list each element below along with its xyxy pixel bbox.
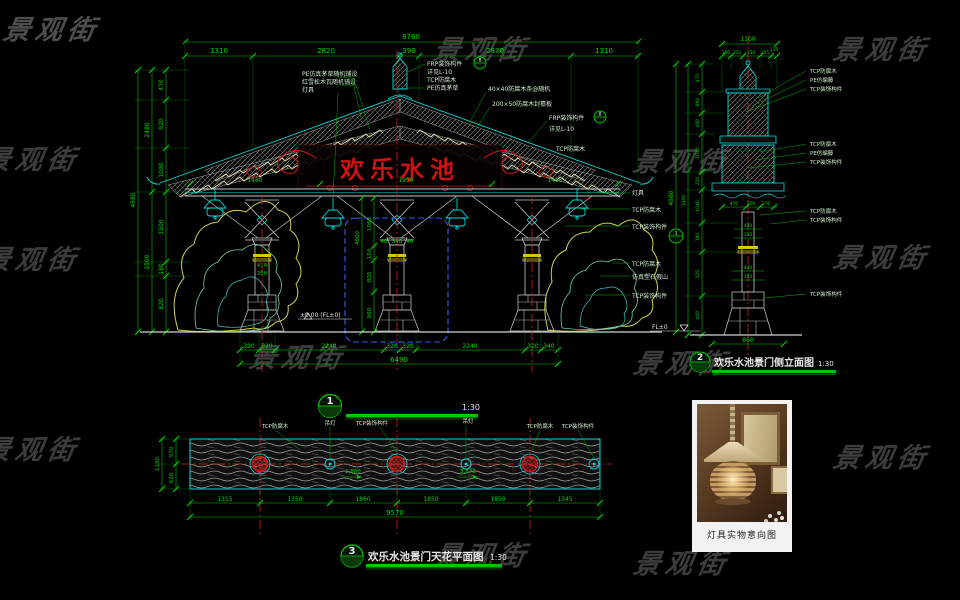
dim-text: 570 [169,446,175,457]
bub​ble-number: 8 [599,112,602,118]
photo-card: 灯具实物意向图 [692,400,792,552]
cad-drawing: 8760 1310 2820 390 2930 1310 470 920 109… [0,0,960,600]
bubble-number: 8 [479,58,482,64]
dim-text: 800 [367,271,373,282]
callout-label: 吊灯 [462,417,474,425]
callout-label: TCP装饰构件 [809,216,843,224]
dim-text: 1090 [158,162,165,177]
detail-bubble: 8 [474,57,486,69]
title-number: 1 [327,396,334,407]
dim-text: 235 [733,50,742,56]
callout-label: TCP装饰构件 [561,422,595,430]
view-title: 欢乐水池景门天花平面图 [367,550,484,563]
dim-text: 4980 [668,190,675,205]
front-left-dims: 470 920 1090 1500 180 820 2480 2500 4980 [130,67,190,335]
level-mark: ±0.00 (FL±0) [298,312,352,319]
dim-text: 2240 [462,343,477,350]
title-number: 2 [697,353,703,363]
bubble-number: 1 [675,231,678,237]
view-title: 欢乐水池景门侧立面图 [713,356,814,369]
callout-label: TCP装饰构件 [809,85,843,93]
callout-label: FRP装饰构件 [427,60,462,68]
dim-text: 430 [744,223,753,229]
dim-text: 110 [770,47,779,53]
callout-label: TCP防腐木 [809,140,837,148]
title-number: 3 [349,546,356,557]
lamp-icon [322,198,344,229]
callout-label: TCP防腐木 [555,145,585,153]
callout-label: 吊灯 [324,419,336,427]
front-bottom-dims: 390 320 2240 320 320 2240 320 340 6490 [237,332,561,367]
photo-small-frame [771,466,787,494]
dim-text: 2930 [486,47,504,55]
dim-text: 1065 [367,217,373,231]
callout-label: TCP装饰构件 [809,290,843,298]
front-right-dim: 4980 [668,61,679,335]
dim-text: 470 [730,201,739,207]
dim-text: 470 [158,79,165,91]
dim-text: 450 [695,119,701,128]
callout-label: PE仿真茅草 [427,84,458,92]
callout-label: TCP防腐木 [631,260,661,268]
callout-label: PE仿编藤 [810,149,834,157]
callout-label: TCP防腐木 [809,67,837,75]
callout-label: 详见L-10 [549,125,574,133]
dim-text: 220 [695,177,701,186]
dim-text: 860 [367,307,373,318]
photo-lamp-body [710,461,756,501]
dim-text: 1315 [217,496,232,503]
dim-text: 1310 [595,47,613,55]
side-elevation: 1100 180 235 350 225 110 470 860 450 104… [650,35,843,375]
plan-note: 3,870 [460,469,476,475]
dim-text: 1190 [155,457,161,471]
dim-text: 40 [381,239,388,245]
callout-label: 40×40防腐木条@随机 [488,85,550,93]
dim-text: 2480 [144,122,151,137]
dim-text: 320 [527,343,539,350]
dim-text: 1040 [695,200,701,212]
dim-text: 440 [744,265,753,271]
callout-label: PE仿编藤 [810,76,834,84]
dim-text: 350 [747,201,756,207]
dim-text: 9570 [386,509,404,517]
scale-label: 1:30 [462,403,480,412]
dim-text: 180 [158,263,165,275]
dim-text: 5180 [681,194,687,206]
callout-label: FRP装饰构件 [549,114,584,122]
dim-text: 320 [386,343,398,350]
plan-title: 3 欢乐水池景门天花平面图 1:30 [341,545,507,570]
dim-text: 180 [695,233,701,242]
dim-text: 1350 [287,496,302,503]
dim-text: 470 [695,74,701,83]
dim-text: 2500 [144,254,151,269]
dim-text: 520 [695,270,701,279]
photo-lamp-rope [730,404,735,446]
dim-text: 2820 [317,47,335,55]
dim-text: 860 [695,98,701,107]
dim-text: 1500 [158,219,165,234]
photo-lamp-glow [715,466,751,496]
detail-bubble: 1 [669,229,683,243]
dim-text: 1480 [247,177,262,184]
callout-label: TCP防腐木 [426,76,456,84]
dim-text: 4980 [130,192,137,207]
lamp-photo [697,404,787,522]
callout-label: TCP装饰构件 [809,158,843,166]
dim-text: 320 [402,343,414,350]
dim-text: 40 [407,239,414,245]
column-symbol [520,454,540,474]
dim-text: 6490 [390,356,408,364]
plan-bottom-dims: 1315 1350 1860 1850 1850 1345 9570 [187,489,603,520]
side-title: 2 欢乐水池景门侧立面图 1:30 [690,352,836,375]
callout-label: 灯具 [632,189,644,197]
front-title: 1 欢乐水池景门正立面图 1:30 [319,395,509,420]
callout-label: 灯具 [302,86,314,94]
dim-text: 1310 [210,47,228,55]
front-elevation: 8760 1310 2820 390 2930 1310 470 920 109… [130,33,683,420]
dim-text: 820 [158,298,165,310]
level-text: FL±0 [652,324,668,331]
callout-label: TCP装饰构件 [355,419,389,427]
left-rockery [174,201,301,331]
center-chain-dims: 4800 1065 150 800 860 [355,195,377,335]
dim-text: 4800 [355,231,361,245]
dim-text: 620 [169,472,175,483]
ceiling-plan: TCP防腐木 吊灯 TCP装饰构件 吊灯 TCP防腐木 TCP装饰构件 1,80… [155,417,612,570]
dim-text: 150 [367,248,373,259]
callout-label: TCP装饰构件 [631,292,667,300]
callout-label: 200×50防腐木封檐板 [492,100,552,108]
scale-label: 1:30 [490,553,507,562]
dim-text: 1850 [490,496,505,503]
dim-text: 1345 [557,496,572,503]
dim-text: 350 [744,274,753,280]
callout-label: TCP装饰构件 [631,223,667,231]
photo-caption: 灯具实物意向图 [692,528,792,541]
plan-note: 1,800 [345,469,361,475]
photo-flowers [780,516,784,520]
dim-text: 370 [762,201,771,207]
dim-text: 1040 [695,147,701,159]
dim-text: 225 [761,50,770,56]
callout-label: TCP防腐木 [526,422,554,430]
dim-text: 340 [543,343,555,350]
detail-bubble: 8 [594,111,606,123]
scale-label: 1:30 [818,360,834,368]
callout-label: 详见L-10 [427,68,452,76]
dim-text: 8760 [402,33,420,41]
cad-canvas: 景观街 景观街 景观街 景观街 景观街 景观街 景观街 景观街 景观街 景观街 … [0,0,960,600]
callout-label: TCP防腐木 [809,207,837,215]
dim-text: 400 [695,311,701,320]
callout-label: TCP防腐木 [261,422,289,430]
callout-label: 仿真塑石假山 [632,273,668,281]
column-symbol [250,454,270,474]
dim-text: 390 [402,47,415,55]
photo-lamp-rim [715,498,751,505]
dim-text: 920 [158,118,165,130]
dim-text: 2240 [321,343,336,350]
dim-text: 860 [742,337,754,344]
lamp-icon [446,198,468,229]
column-symbol [387,454,407,474]
dim-text: 350 [744,232,753,238]
dim-text: 1860 [355,496,370,503]
dim-text: 1950 [398,177,413,184]
dim-text: 390 [243,343,255,350]
dim-text: 320 [261,343,273,350]
roof-finial [393,53,407,89]
dim-text: 1850 [423,496,438,503]
view-title: 欢乐水池景门正立面图 [348,395,508,414]
dim-text: 180 [722,50,731,56]
callout-label: TCP防腐木 [631,206,661,214]
dim-text: 1480 [547,177,562,184]
